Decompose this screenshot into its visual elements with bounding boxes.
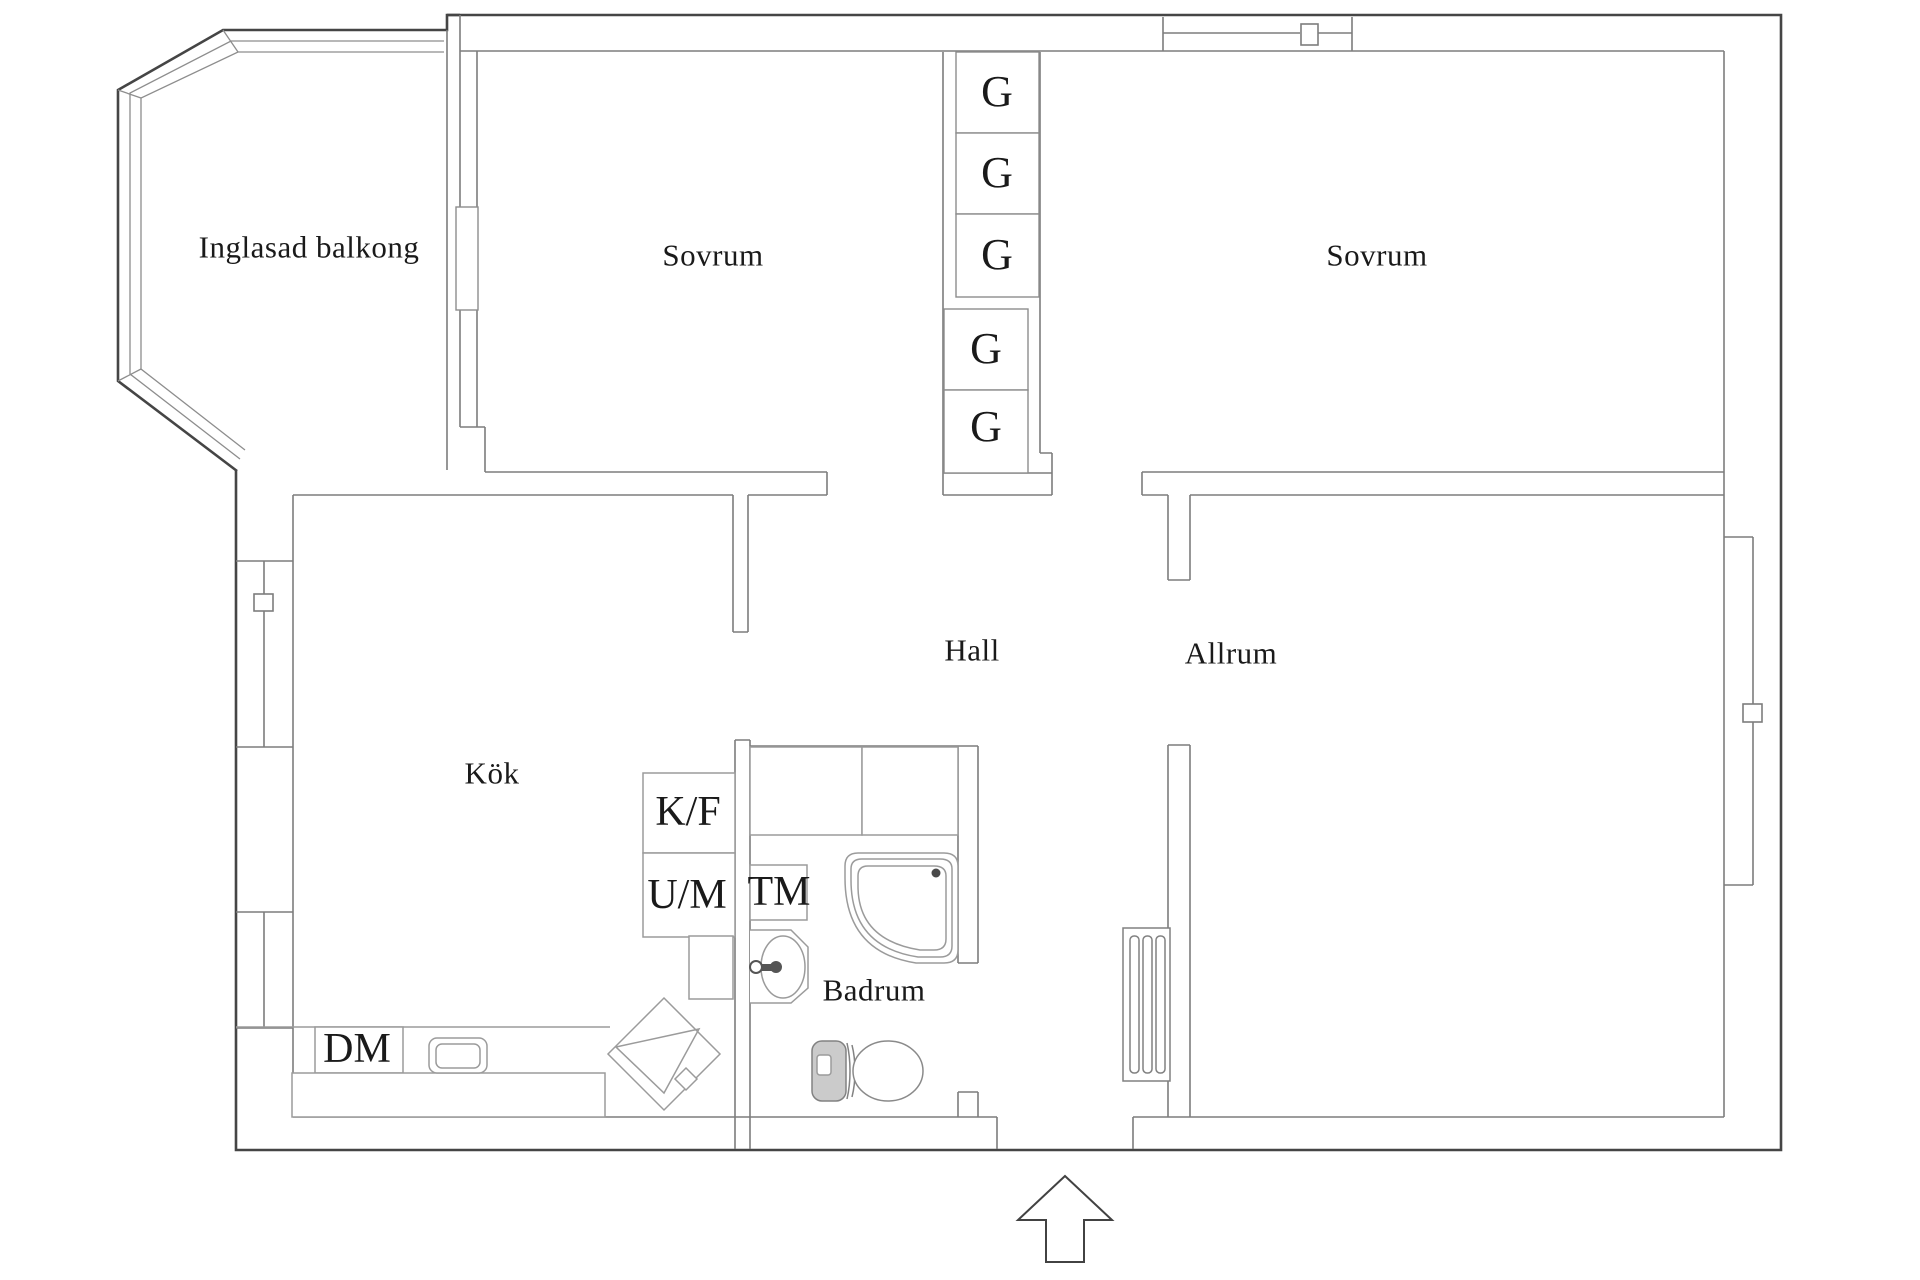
entrance-arrow-icon <box>1018 1176 1112 1262</box>
window-right <box>1724 537 1762 885</box>
balcony-door <box>456 207 478 310</box>
radiator-icon <box>1123 928 1170 1081</box>
bathroom-sink-icon <box>750 930 808 1003</box>
kitchen-table-icon <box>608 998 720 1110</box>
drain-icon <box>932 869 941 878</box>
bathtub-icon <box>845 853 958 963</box>
closet-label: G <box>970 327 1002 371</box>
room-label-kitchen: Kök <box>465 758 520 789</box>
closet-label: G <box>970 405 1002 449</box>
room-label-bathroom: Badrum <box>823 975 926 1006</box>
window-handle-icon <box>1301 24 1318 45</box>
bathroom-fixtures <box>750 747 958 1101</box>
closet-label: G <box>981 233 1013 277</box>
bathroom-cabinet <box>862 747 958 835</box>
window-handle-icon <box>254 594 273 611</box>
outer-walls <box>118 15 1781 1150</box>
closet-label: G <box>981 151 1013 195</box>
stove-box <box>689 936 733 999</box>
room-label-bedroom-right: Sovrum <box>1326 240 1427 271</box>
window-left-lower <box>236 912 293 1028</box>
appliance-label-dishwasher: DM <box>323 1028 391 1070</box>
window-handle-icon <box>1743 704 1762 722</box>
faucet-icon <box>750 961 762 973</box>
bathroom-cabinet <box>750 747 862 835</box>
appliance-label-fridge-freezer: K/F <box>655 791 720 833</box>
kitchen-sink-icon <box>429 1038 487 1073</box>
appliance-label-oven-microwave: U/M <box>647 874 726 916</box>
room-label-balcony: Inglasad balkong <box>199 232 420 263</box>
room-label-bedroom-left: Sovrum <box>662 240 763 271</box>
window-left-upper <box>236 561 293 747</box>
toilet-icon <box>812 1041 923 1101</box>
floorplan-canvas: Inglasad balkong Sovrum Sovrum Hall Kök … <box>0 0 1920 1280</box>
room-label-living-room: Allrum <box>1185 638 1278 669</box>
room-label-hall: Hall <box>944 635 999 666</box>
appliance-label-washing-machine: TM <box>748 871 811 913</box>
closet-label: G <box>981 70 1013 114</box>
window-top <box>1163 17 1352 51</box>
kitchen-counter <box>292 1073 605 1117</box>
